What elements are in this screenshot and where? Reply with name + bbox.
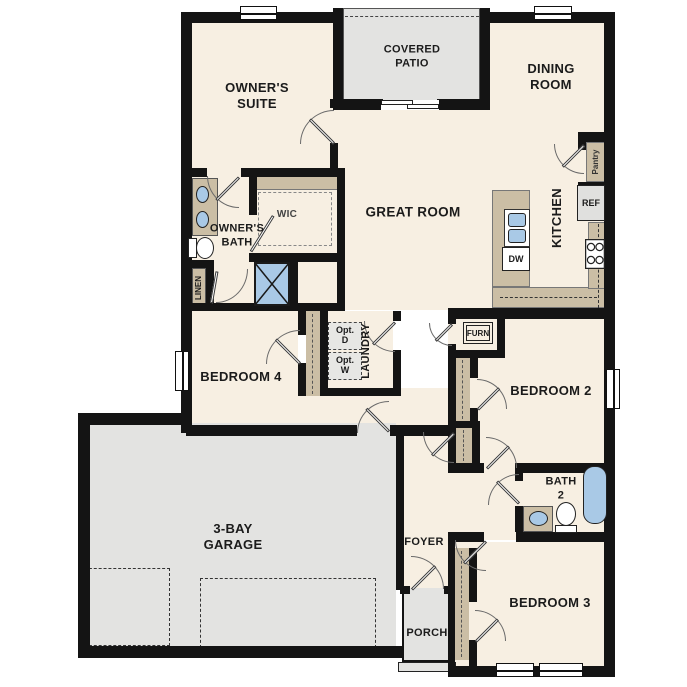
label-line: 2: [546, 489, 577, 503]
window: [606, 369, 620, 409]
wall: [249, 253, 345, 262]
bedroom4-closet-rod: [312, 314, 313, 394]
wall: [515, 506, 523, 532]
wall: [249, 177, 257, 215]
patio-roof-line: [345, 16, 479, 17]
room-label-great-room: GREAT ROOM: [366, 205, 461, 222]
wall: [241, 168, 345, 177]
garage-bay-2: [200, 578, 376, 648]
room-label-kitchen: KITCHEN: [549, 188, 565, 248]
wall: [470, 358, 478, 378]
wall: [330, 143, 338, 169]
feature-label-pantry: Pantry: [591, 150, 601, 175]
window: [175, 351, 189, 391]
label-line: SUITE: [225, 96, 289, 112]
wall: [393, 311, 401, 321]
wall: [448, 421, 480, 428]
room-label-dining-room: DINING ROOM: [527, 61, 574, 94]
label-line: COVERED: [384, 43, 441, 57]
toilet-fixture: [555, 502, 577, 533]
wall: [78, 646, 404, 658]
wall: [78, 413, 90, 658]
room-label-laundry: LAUNDRY: [360, 323, 374, 378]
room-label-bedroom3: BEDROOM 3: [509, 595, 590, 611]
wall: [448, 308, 615, 319]
label-line: PATIO: [384, 57, 441, 71]
wall: [337, 168, 345, 311]
sink-fixture: [529, 511, 548, 526]
bedroom2-closet-a: [456, 358, 470, 421]
room-label-garage: 3-BAY GARAGE: [204, 521, 263, 554]
wall: [78, 413, 186, 425]
bedroom4-closet: [306, 311, 320, 396]
window: [496, 663, 534, 677]
label-line: BATH: [210, 236, 264, 250]
bedroom2-closet-b-rod: [463, 430, 464, 461]
refrigerator-label: REF: [582, 198, 600, 208]
wall: [320, 311, 328, 396]
window: [534, 6, 572, 20]
wall: [298, 363, 306, 396]
room-label-owners-bath: OWNER'S BATH: [210, 222, 264, 250]
label-line: 3-BAY: [204, 521, 263, 537]
shower-fixture: [254, 262, 290, 306]
label-line: BATH: [546, 475, 577, 489]
sink-fixture: [196, 211, 209, 228]
sink-fixture: [196, 186, 209, 203]
wall: [472, 428, 480, 463]
wic-shelf: [253, 177, 337, 190]
wall: [396, 436, 404, 590]
bedroom3-closet-rod: [461, 551, 462, 657]
kitchen-counter-dash-h: [500, 297, 597, 298]
floor-plan: DW REF FURN Opt. D Opt. W COVERED PATIO …: [0, 0, 687, 687]
sliding-door: [381, 100, 439, 110]
wall: [448, 350, 505, 358]
room-label-porch: PORCH: [406, 627, 447, 641]
label-line: OWNER'S: [225, 80, 289, 96]
bathtub-fixture: [583, 466, 607, 524]
wall: [343, 99, 383, 110]
window: [539, 663, 583, 677]
wall: [578, 132, 615, 142]
label-line: DINING: [527, 61, 574, 77]
opt-w-line2: W: [329, 366, 361, 376]
dishwasher: DW: [502, 247, 530, 271]
porch-wall-stub: [444, 586, 454, 594]
kitchen-sink-fixture: [504, 209, 530, 247]
furnace: FURN: [463, 322, 493, 344]
wall: [604, 12, 615, 677]
room-label-bedroom4: BEDROOM 4: [200, 369, 281, 385]
wall: [320, 388, 401, 396]
room-label-wic: WIC: [277, 209, 297, 222]
wall: [186, 425, 357, 436]
wall: [437, 99, 480, 110]
kitchen-counter-lower: [588, 268, 605, 289]
label-line: OWNER'S: [210, 222, 264, 236]
wall: [448, 542, 455, 666]
wall: [516, 532, 615, 542]
wall: [181, 168, 207, 177]
optional-dryer: Opt. D: [328, 322, 362, 350]
wall: [469, 640, 477, 667]
kitchen-counter-upper: [588, 222, 605, 240]
room-label-bath2: BATH 2: [546, 475, 577, 503]
label-line: ROOM: [527, 77, 574, 93]
wall: [448, 463, 484, 473]
feature-label-linen: LINEN: [194, 276, 204, 300]
room-label-bedroom2: BEDROOM 2: [510, 383, 591, 399]
furnace-label: FURN: [467, 329, 489, 338]
patio-wall: [480, 8, 490, 110]
wall: [181, 260, 214, 268]
porch-wall-stub: [400, 586, 410, 594]
wall: [330, 99, 338, 108]
label-line: GARAGE: [204, 537, 263, 553]
room-label-covered-patio: COVERED PATIO: [384, 43, 441, 71]
porch-floor: [402, 588, 452, 662]
garage-bay-1: [84, 568, 170, 646]
refrigerator: REF: [577, 185, 605, 221]
bedroom2-closet-a-rod: [462, 360, 463, 419]
window: [240, 6, 277, 20]
stove-fixture: [585, 239, 605, 269]
wall: [470, 408, 478, 421]
opt-d-line2: D: [329, 336, 361, 346]
bedroom2-closet-b: [456, 428, 472, 463]
room-label-foyer: FOYER: [404, 536, 443, 550]
patio-wall: [333, 8, 343, 110]
room-label-owners-suite: OWNER'S SUITE: [225, 80, 289, 113]
optional-washer: Opt. W: [328, 352, 362, 380]
dishwasher-label: DW: [509, 254, 524, 264]
